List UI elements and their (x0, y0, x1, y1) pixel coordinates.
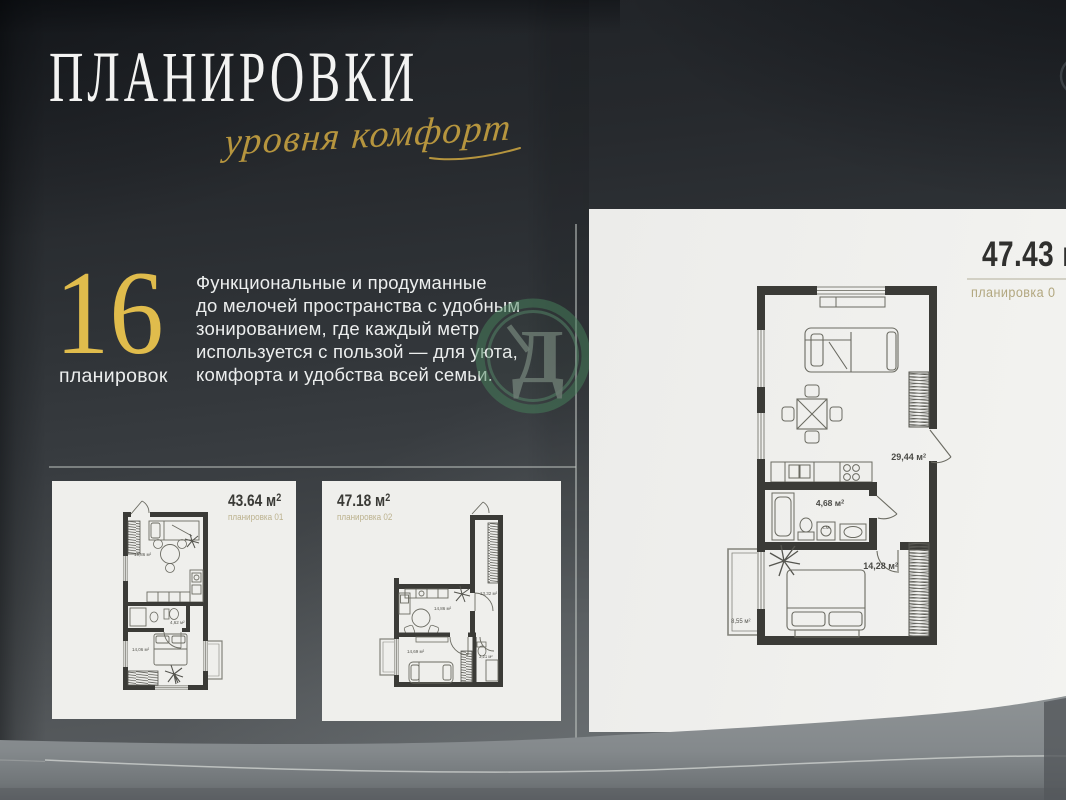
svg-text:14,28 м2: 14,28 м2 (863, 561, 898, 571)
svg-text:Д: Д (512, 315, 564, 399)
svg-text:4,68 м2: 4,68 м2 (816, 498, 844, 508)
svg-text:29,44 м2: 29,44 м2 (891, 452, 926, 462)
svg-text:14,06 м²: 14,06 м² (132, 647, 150, 652)
svg-text:14,69 м²: 14,69 м² (407, 649, 425, 654)
svg-text:43.64 м2: 43.64 м2 (228, 492, 282, 511)
svg-text:47.43 м2: 47.43 м2 (982, 234, 1066, 274)
svg-text:14,86 м²: 14,86 м² (434, 606, 452, 611)
svg-text:47.18 м2: 47.18 м2 (337, 492, 391, 511)
svg-text:планировка 02: планировка 02 (337, 512, 393, 523)
svg-text:3,21 м²: 3,21 м² (479, 654, 493, 659)
svg-text:13,32 м²: 13,32 м² (480, 591, 498, 596)
svg-text:8,55 м²: 8,55 м² (731, 619, 750, 625)
svg-text:19,86 м²: 19,86 м² (134, 552, 152, 557)
svg-text:СМ: СМ (823, 525, 830, 530)
svg-text:4,62 м²: 4,62 м² (170, 620, 185, 625)
svg-text:планировка 0: планировка 0 (971, 284, 1055, 300)
svg-text:планировка 01: планировка 01 (228, 512, 284, 523)
